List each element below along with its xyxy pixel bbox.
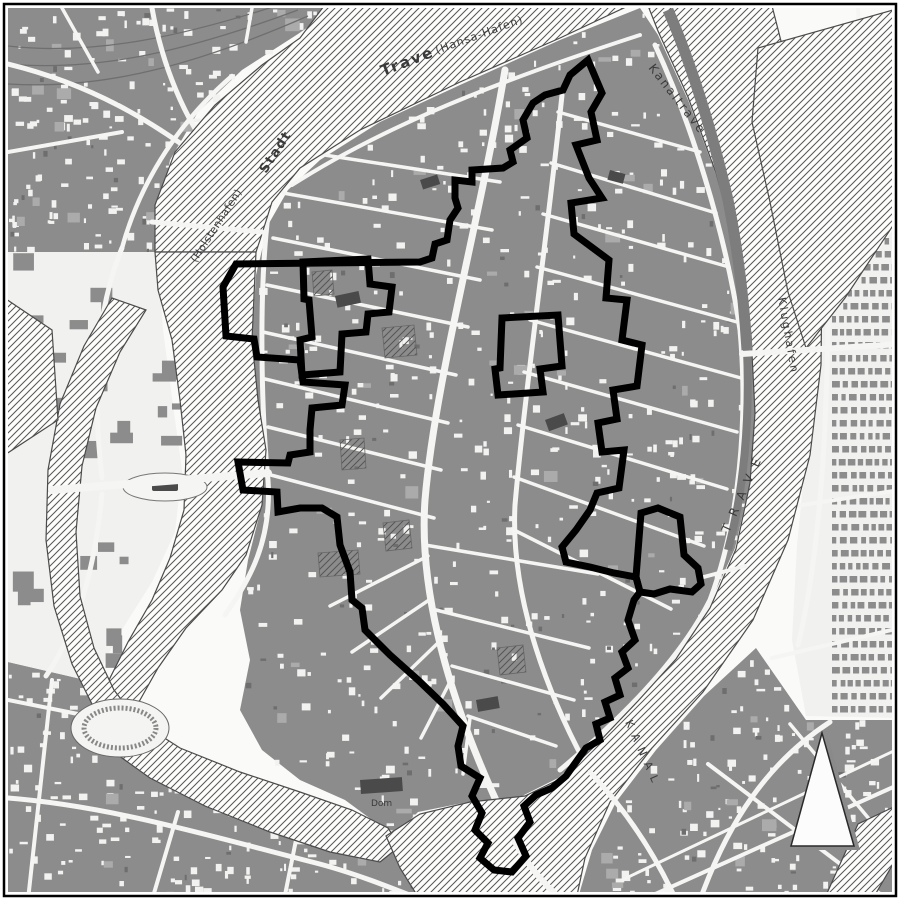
map-screenshot: Trave(Hansa-Hafen)Stadt(Holstenhafen)Kan… [0, 0, 900, 900]
water-label-dom: Dom [371, 799, 392, 809]
city-map: Trave(Hansa-Hafen)Stadt(Holstenhafen)Kan… [0, 0, 900, 900]
